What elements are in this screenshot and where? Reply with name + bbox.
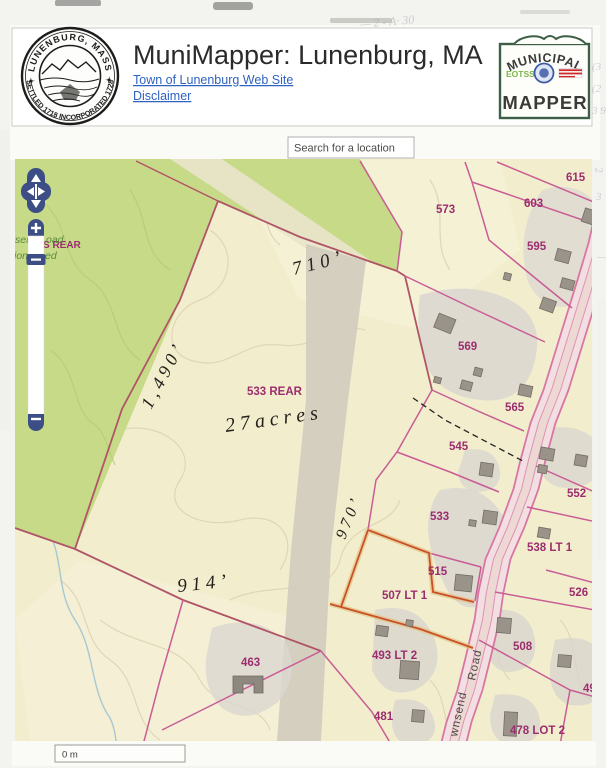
svg-text:545: 545	[449, 441, 469, 453]
svg-text:533: 533	[430, 511, 449, 523]
svg-text:565: 565	[505, 402, 525, 414]
svg-text:603: 603	[524, 198, 543, 210]
svg-text:533 REAR: 533 REAR	[247, 386, 303, 398]
svg-text:478 LOT 2: 478 LOT 2	[510, 725, 565, 737]
svg-text:569: 569	[458, 341, 477, 353]
svg-text:oad: oad	[46, 234, 65, 246]
svg-text:615: 615	[566, 172, 586, 184]
svg-text:Town of Lunenburg Web Site: Town of Lunenburg Web Site	[133, 73, 293, 87]
svg-text:Search for a location: Search for a location	[294, 143, 395, 155]
svg-text:3: 3	[595, 191, 602, 203]
svg-text:(2: (2	[592, 83, 602, 95]
svg-text:463: 463	[241, 657, 260, 669]
svg-text:0 m: 0 m	[62, 750, 78, 761]
svg-text:EOTSS: EOTSS	[506, 69, 535, 79]
svg-text:507 LT 1: 507 LT 1	[382, 590, 428, 602]
svg-text:—: —	[596, 251, 606, 263]
svg-text:(3: (3	[592, 61, 602, 73]
svg-text:ed: ed	[45, 250, 58, 262]
svg-text:3 9: 3 9	[591, 105, 606, 117]
svg-text:595: 595	[527, 241, 547, 253]
svg-text:538 LT 1: 538 LT 1	[527, 542, 573, 554]
svg-text:MAPPER: MAPPER	[502, 92, 587, 113]
svg-text:573: 573	[436, 204, 455, 216]
svg-text:MuniMapper: Lunenburg, MA: MuniMapper: Lunenburg, MA	[133, 40, 483, 70]
svg-text:Disclaimer: Disclaimer	[133, 89, 191, 103]
svg-text:508: 508	[513, 641, 533, 653]
svg-text:552: 552	[567, 488, 586, 500]
svg-text:481: 481	[374, 711, 394, 723]
svg-text:493 LT 2: 493 LT 2	[372, 650, 417, 662]
svg-text:515: 515	[428, 566, 448, 578]
svg-text:ion: ion	[14, 250, 28, 262]
